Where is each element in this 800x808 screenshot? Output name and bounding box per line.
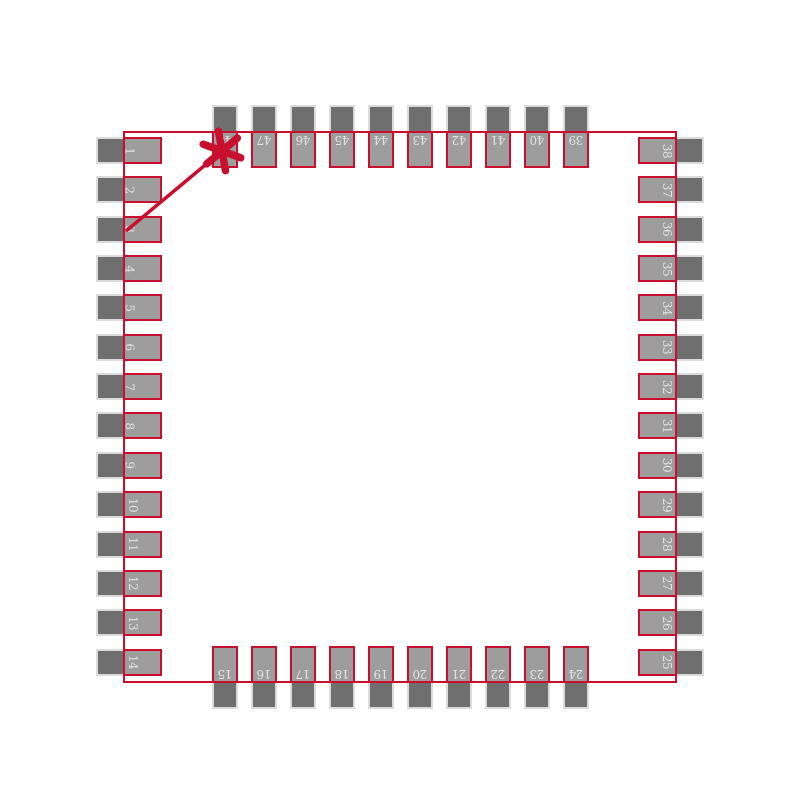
pin-number: 12 <box>127 576 139 590</box>
pin-number: 33 <box>661 340 673 354</box>
pin-number: 9 <box>124 462 136 469</box>
lead-stub-pin-12 <box>98 572 124 595</box>
lead-stub-pin-46 <box>292 107 314 132</box>
pad-pin-33: 33 <box>638 334 677 361</box>
pin-number: 15 <box>218 668 232 680</box>
pad-pin-5: 5 <box>123 294 162 321</box>
pin-number: 22 <box>491 668 505 680</box>
pin-number: 28 <box>661 537 673 551</box>
pad-pin-16: 16 <box>251 646 277 683</box>
pad-pin-41: 41 <box>485 131 511 168</box>
pin-number: 41 <box>491 134 505 146</box>
pad-pin-36: 36 <box>638 216 677 243</box>
pad-pin-35: 35 <box>638 255 677 282</box>
pin-number: 37 <box>661 183 673 197</box>
lead-stub-pin-20 <box>409 681 431 707</box>
pad-pin-32: 32 <box>638 373 677 400</box>
lead-stub-pin-14 <box>98 651 124 674</box>
lead-stub-pin-23 <box>526 681 548 707</box>
pin-number: 29 <box>661 498 673 512</box>
pad-pin-38: 38 <box>638 137 677 164</box>
pad-pin-42: 42 <box>446 131 472 168</box>
pin-number: 42 <box>452 134 466 146</box>
lead-stub-pin-28 <box>676 533 702 556</box>
pad-pin-19: 19 <box>368 646 394 683</box>
lead-stub-pin-43 <box>409 107 431 132</box>
lead-stub-pin-18 <box>331 681 353 707</box>
pin-number: 48 <box>218 134 232 146</box>
pad-pin-47: 47 <box>251 131 277 168</box>
pad-pin-18: 18 <box>329 646 355 683</box>
pad-pin-23: 23 <box>524 646 550 683</box>
pin-number: 6 <box>124 344 136 351</box>
lead-stub-pin-42 <box>448 107 470 132</box>
pad-pin-9: 9 <box>123 452 162 479</box>
pad-pin-1: 1 <box>123 137 162 164</box>
pad-pin-24: 24 <box>563 646 589 683</box>
lead-stub-pin-3 <box>98 218 124 241</box>
lead-stub-pin-17 <box>292 681 314 707</box>
pad-pin-43: 43 <box>407 131 433 168</box>
pad-pin-4: 4 <box>123 255 162 282</box>
pad-pin-39: 39 <box>563 131 589 168</box>
lead-stub-pin-9 <box>98 454 124 477</box>
pad-pin-44: 44 <box>368 131 394 168</box>
lead-stub-pin-39 <box>565 107 587 132</box>
pin-number: 35 <box>661 261 673 275</box>
pin-number: 46 <box>296 134 310 146</box>
pad-pin-14: 14 <box>123 649 162 676</box>
ic-footprint-diagram: 1234567891011121314383736353433323130292… <box>0 0 800 808</box>
pin-number: 36 <box>661 222 673 236</box>
pin-number: 10 <box>127 498 139 512</box>
lead-stub-pin-4 <box>98 257 124 280</box>
pad-pin-8: 8 <box>123 412 162 439</box>
lead-stub-pin-25 <box>676 651 702 674</box>
pad-pin-46: 46 <box>290 131 316 168</box>
pin-number: 18 <box>335 668 349 680</box>
pin-number: 2 <box>124 186 136 193</box>
pad-pin-48: 48 <box>212 131 238 168</box>
pin-number: 17 <box>296 668 310 680</box>
pad-pin-20: 20 <box>407 646 433 683</box>
lead-stub-pin-27 <box>676 572 702 595</box>
pad-pin-34: 34 <box>638 294 677 321</box>
lead-stub-pin-31 <box>676 414 702 437</box>
pad-pin-15: 15 <box>212 646 238 683</box>
pad-pin-3: 3 <box>123 216 162 243</box>
pad-pin-27: 27 <box>638 570 677 597</box>
pin-number: 3 <box>124 226 136 233</box>
pad-pin-45: 45 <box>329 131 355 168</box>
pin-number: 11 <box>127 537 139 551</box>
pad-pin-30: 30 <box>638 452 677 479</box>
pin-number: 23 <box>530 668 544 680</box>
lead-stub-pin-41 <box>487 107 509 132</box>
pad-pin-37: 37 <box>638 176 677 203</box>
lead-stub-pin-40 <box>526 107 548 132</box>
lead-stub-pin-11 <box>98 533 124 556</box>
pad-pin-29: 29 <box>638 491 677 518</box>
lead-stub-pin-36 <box>676 218 702 241</box>
lead-stub-pin-2 <box>98 178 124 201</box>
pad-pin-12: 12 <box>123 570 162 597</box>
pad-pin-21: 21 <box>446 646 472 683</box>
pad-pin-28: 28 <box>638 531 677 558</box>
lead-stub-pin-29 <box>676 493 702 516</box>
pad-pin-25: 25 <box>638 649 677 676</box>
pin-number: 26 <box>661 616 673 630</box>
pin-number: 5 <box>124 304 136 311</box>
pin-number: 20 <box>413 668 427 680</box>
pin-number: 39 <box>569 134 583 146</box>
lead-stub-pin-24 <box>565 681 587 707</box>
lead-stub-pin-6 <box>98 336 124 359</box>
pin-number: 13 <box>127 616 139 630</box>
pad-pin-31: 31 <box>638 412 677 439</box>
lead-stub-pin-35 <box>676 257 702 280</box>
pad-pin-17: 17 <box>290 646 316 683</box>
pin-number: 30 <box>661 458 673 472</box>
lead-stub-pin-30 <box>676 454 702 477</box>
pad-pin-2: 2 <box>123 176 162 203</box>
pad-pin-10: 10 <box>123 491 162 518</box>
lead-stub-pin-21 <box>448 681 470 707</box>
lead-stub-pin-34 <box>676 296 702 319</box>
lead-stub-pin-45 <box>331 107 353 132</box>
lead-stub-pin-33 <box>676 336 702 359</box>
lead-stub-pin-15 <box>214 681 236 707</box>
pin-number: 8 <box>124 422 136 429</box>
pin-number: 16 <box>257 668 271 680</box>
pin-number: 21 <box>452 668 466 680</box>
pin-number: 27 <box>661 576 673 590</box>
pad-pin-6: 6 <box>123 334 162 361</box>
lead-stub-pin-22 <box>487 681 509 707</box>
pin-number: 4 <box>124 265 136 272</box>
pad-pin-26: 26 <box>638 609 677 636</box>
pin-number: 44 <box>374 134 388 146</box>
pin-number: 24 <box>569 668 583 680</box>
pad-pin-40: 40 <box>524 131 550 168</box>
pin-number: 1 <box>124 147 136 154</box>
pad-pin-13: 13 <box>123 609 162 636</box>
pin-number: 7 <box>124 383 136 390</box>
pin-number: 25 <box>661 655 673 669</box>
lead-stub-pin-44 <box>370 107 392 132</box>
package-outline <box>123 131 677 683</box>
lead-stub-pin-38 <box>676 139 702 162</box>
pin-number: 43 <box>413 134 427 146</box>
lead-stub-pin-16 <box>253 681 275 707</box>
lead-stub-pin-26 <box>676 611 702 634</box>
lead-stub-pin-10 <box>98 493 124 516</box>
pin-number: 19 <box>374 668 388 680</box>
lead-stub-pin-7 <box>98 375 124 398</box>
pin-number: 38 <box>661 143 673 157</box>
pin-number: 14 <box>127 655 139 669</box>
lead-stub-pin-48 <box>214 107 236 132</box>
lead-stub-pin-37 <box>676 178 702 201</box>
lead-stub-pin-1 <box>98 139 124 162</box>
lead-stub-pin-13 <box>98 611 124 634</box>
pad-pin-11: 11 <box>123 531 162 558</box>
pin-number: 40 <box>530 134 544 146</box>
lead-stub-pin-8 <box>98 414 124 437</box>
pin-number: 47 <box>257 134 271 146</box>
pin-number: 34 <box>661 301 673 315</box>
lead-stub-pin-32 <box>676 375 702 398</box>
pin-number: 32 <box>661 379 673 393</box>
pad-pin-7: 7 <box>123 373 162 400</box>
lead-stub-pin-19 <box>370 681 392 707</box>
pin-number: 45 <box>335 134 349 146</box>
pin-number: 31 <box>661 419 673 433</box>
lead-stub-pin-5 <box>98 296 124 319</box>
pad-pin-22: 22 <box>485 646 511 683</box>
lead-stub-pin-47 <box>253 107 275 132</box>
